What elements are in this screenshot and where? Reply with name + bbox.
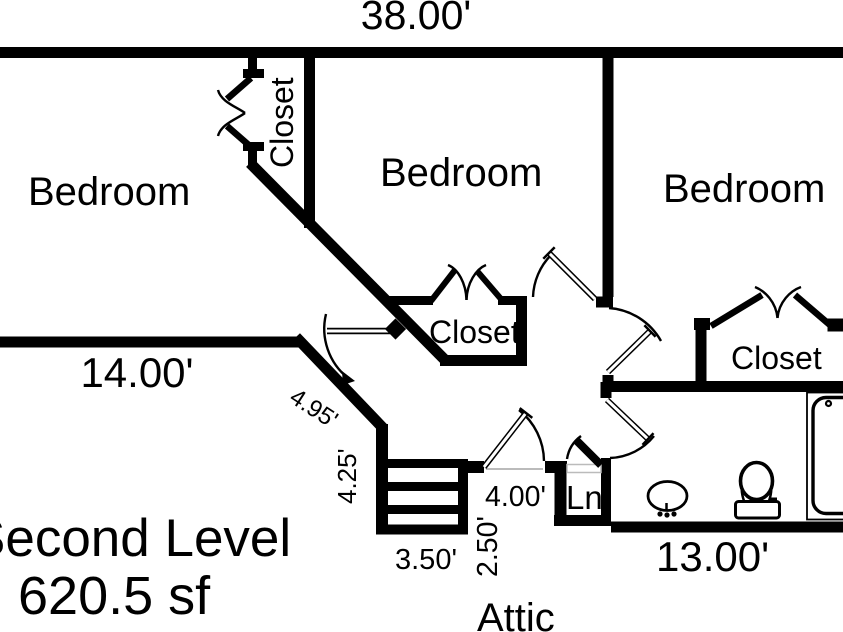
svg-text:Bedroom: Bedroom [663,167,825,211]
svg-text:2.50': 2.50' [472,516,504,577]
svg-text:620.5 sf: 620.5 sf [18,566,211,626]
svg-text:3.50': 3.50' [395,544,457,576]
svg-text:4.00': 4.00' [485,481,546,513]
svg-text:Ln: Ln [566,479,603,516]
svg-text:14.00': 14.00' [80,349,193,396]
svg-text:38.00': 38.00' [361,0,471,38]
svg-text:Closet: Closet [429,314,520,350]
svg-text:Closet: Closet [264,77,300,168]
svg-text:13.00': 13.00' [656,533,769,580]
svg-text:Bedroom: Bedroom [28,170,190,214]
svg-text:Second Level: Second Level [0,509,291,568]
svg-text:Bedroom: Bedroom [380,151,542,195]
svg-text:Attic: Attic [477,596,555,632]
svg-text:4.25': 4.25' [332,448,362,504]
svg-text:Closet: Closet [731,340,822,376]
